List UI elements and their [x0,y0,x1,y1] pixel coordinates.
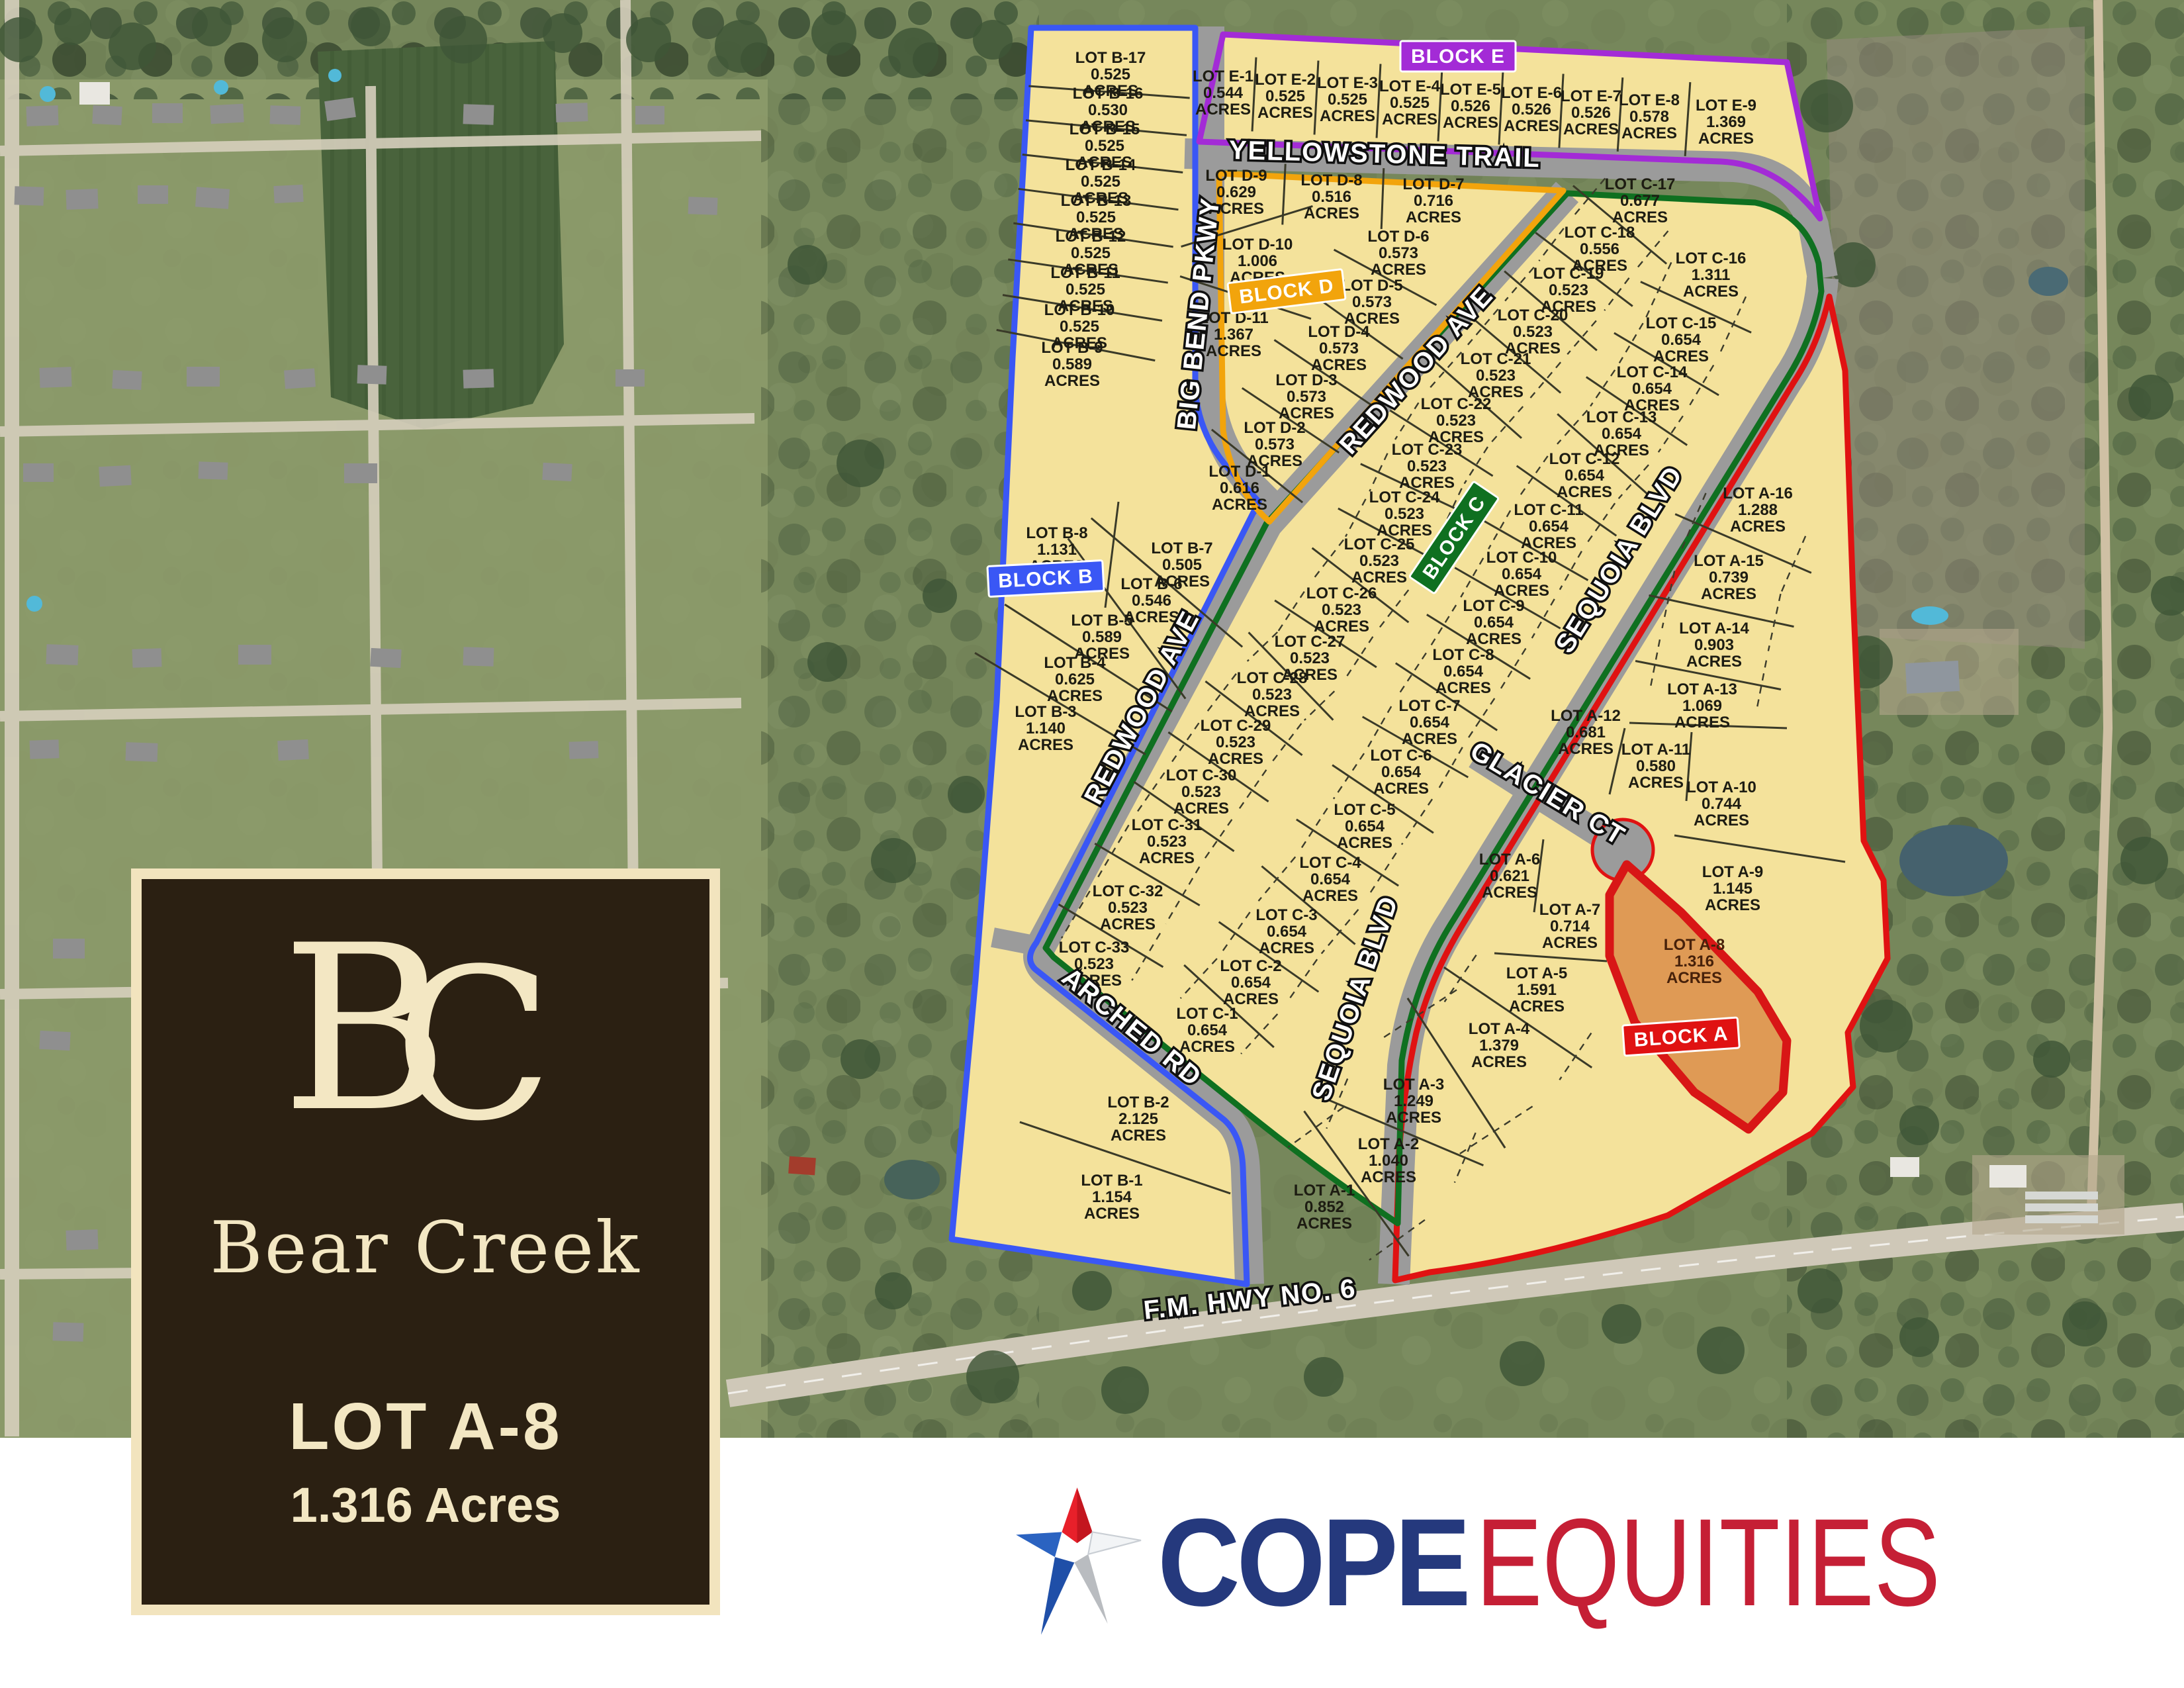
title-panel: C B Bear Creek LOT A-8 1.316 Acres [131,868,720,1615]
svg-text:BLOCK E: BLOCK E [1411,46,1505,68]
badge-block-b: BLOCK B [987,560,1104,596]
house [463,647,494,667]
tree-cluster [192,7,232,46]
house [99,465,132,487]
house [542,463,572,481]
brand-word-secondary: EQUITIES [1476,1491,1940,1634]
house [284,368,316,389]
house [370,648,401,668]
tree-cluster [109,23,156,70]
tree-cluster [626,17,671,62]
tree-cluster [543,13,582,53]
house [23,463,54,482]
house [79,82,110,105]
house [199,461,228,480]
tree-cluster [1101,1366,1149,1414]
house [46,644,78,665]
tree-cluster [923,579,957,613]
tree-cluster [1072,1271,1112,1311]
tree-cluster [788,245,827,285]
house [26,105,58,126]
tree-cluster [973,20,1013,60]
tree-cluster [841,1039,880,1079]
house [270,105,301,125]
badge-block-e: BLOCK E [1400,41,1516,71]
star-icon [1006,1485,1148,1640]
pool [328,69,341,82]
house [688,197,718,215]
house [463,104,494,125]
tree-cluster [875,1272,912,1309]
house [53,1322,84,1342]
featured-lot-title: LOT A-8 [289,1389,562,1465]
pond [1899,825,2008,896]
house [463,369,494,389]
house [53,939,85,959]
pond [884,1160,940,1199]
brand-logo: COPE EQUITIES [1006,1456,2171,1668]
house [152,103,183,123]
house [556,103,588,122]
house [15,186,44,206]
tree-cluster [1602,1304,1641,1344]
tree-cluster [807,642,847,682]
tree-cluster [2128,375,2173,420]
house [112,370,142,390]
house [126,742,158,762]
tree-cluster [1304,1357,1343,1397]
house [238,645,271,665]
bear-creek-monogram-logo: C B [240,915,611,1200]
flyer-root: { "title_panel": { "monogram_b": "B", "m… [0,0,2184,1688]
pool [214,80,228,95]
house [277,739,309,761]
house [138,185,168,204]
tree-cluster [811,11,856,56]
house [30,739,60,759]
house [92,105,122,125]
tree-cluster [2033,1041,2070,1078]
tree-cluster [1697,1327,1745,1374]
tree-cluster [1797,1268,1843,1313]
house [273,185,303,203]
house [39,1031,70,1051]
house [39,367,71,388]
house [210,104,244,124]
tree-cluster [351,7,390,46]
tree-cluster [2062,1301,2107,1346]
community-name: Bear Creek [210,1207,641,1289]
brand-word-primary: COPE [1158,1491,1467,1634]
tree-cluster [1800,79,1853,132]
pond [2028,267,2068,296]
featured-lot-acreage: 1.316 Acres [291,1477,561,1533]
tree-cluster [966,1350,1019,1403]
tree-cluster [54,8,91,45]
house [66,189,98,210]
tree-cluster [837,440,884,487]
house [615,369,645,387]
title-panel-inner: C B Bear Creek LOT A-8 1.316 Acres [142,879,709,1605]
house [569,741,599,759]
tree-cluster [1899,1105,1939,1145]
tree-cluster [871,838,916,883]
house [788,1156,816,1176]
tree-cluster [1860,1000,1913,1053]
monogram-letter-b: B [281,915,449,1144]
pool [40,86,56,102]
tree-cluster [888,28,938,78]
tree-cluster [262,17,307,62]
house [66,1229,98,1250]
house [187,367,220,387]
house [635,106,664,124]
tree-cluster [2120,837,2168,884]
tree-cluster [439,16,487,64]
house [132,648,162,668]
tree-cluster [1500,1341,1545,1386]
house [357,365,387,385]
house [324,97,356,121]
tree-cluster [1899,1317,1939,1357]
pool [26,596,42,612]
tree-cluster [948,776,985,813]
tree-cluster [715,20,768,73]
house [344,463,377,483]
house [195,187,230,209]
